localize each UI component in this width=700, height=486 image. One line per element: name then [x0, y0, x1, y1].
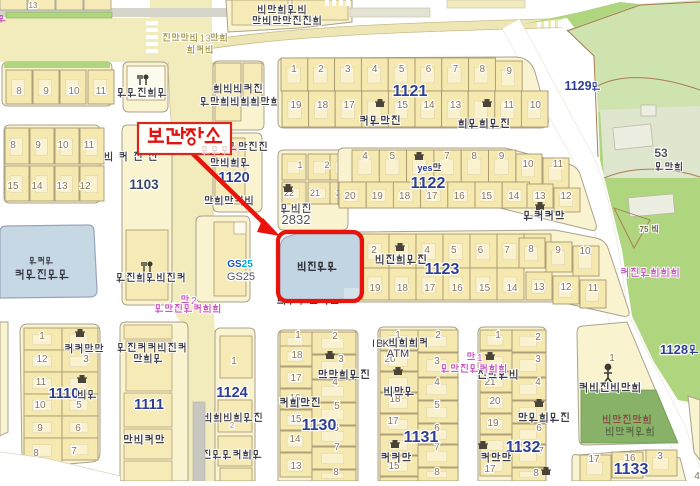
svg-text:15: 15 [481, 191, 493, 202]
svg-text:19: 19 [369, 283, 381, 294]
svg-text:5: 5 [334, 401, 340, 412]
svg-text:17: 17 [484, 464, 496, 475]
svg-text:9: 9 [35, 140, 41, 151]
svg-text:2: 2 [230, 421, 235, 430]
svg-text:15: 15 [479, 283, 491, 294]
svg-text:11: 11 [96, 86, 107, 97]
svg-text:1129: 1129 [564, 79, 591, 93]
svg-text:5: 5 [451, 245, 457, 256]
svg-text:3: 3 [338, 354, 344, 365]
svg-text:2: 2 [535, 332, 541, 343]
svg-text:14: 14 [289, 434, 301, 445]
svg-text:11: 11 [36, 377, 47, 388]
svg-text:10: 10 [34, 400, 46, 411]
svg-text:7: 7 [444, 151, 450, 162]
svg-text:3: 3 [434, 356, 440, 367]
svg-text:1121: 1121 [393, 83, 428, 100]
svg-text:3: 3 [535, 354, 541, 365]
svg-text:6: 6 [478, 245, 484, 256]
svg-text:17: 17 [387, 416, 399, 427]
svg-text:12: 12 [79, 181, 91, 192]
svg-text:1: 1 [495, 330, 501, 341]
svg-text:18: 18 [291, 350, 303, 361]
svg-text:8: 8 [528, 244, 534, 255]
svg-text:8: 8 [434, 467, 440, 478]
svg-text:9: 9 [43, 86, 49, 97]
svg-text:1: 1 [297, 160, 302, 170]
svg-text:9: 9 [506, 66, 512, 77]
svg-text:1123: 1123 [425, 261, 460, 278]
svg-text:17: 17 [344, 100, 356, 111]
svg-text:1: 1 [231, 356, 237, 367]
svg-text:13: 13 [534, 191, 546, 202]
svg-text:12: 12 [560, 191, 572, 202]
svg-text:15: 15 [290, 414, 302, 425]
svg-text:2: 2 [324, 160, 329, 170]
svg-text:7: 7 [453, 64, 459, 75]
svg-text:17: 17 [426, 191, 438, 202]
svg-text:11: 11 [588, 283, 599, 294]
svg-text:19: 19 [372, 191, 384, 202]
svg-text:8: 8 [10, 140, 16, 151]
svg-text:2832: 2832 [282, 212, 311, 227]
svg-text:8: 8 [480, 64, 486, 75]
svg-text:1130: 1130 [302, 417, 337, 434]
svg-text:20: 20 [489, 396, 501, 407]
svg-text:8: 8 [16, 86, 22, 97]
svg-text:19: 19 [290, 100, 302, 111]
svg-text:6: 6 [536, 423, 542, 434]
svg-text:2: 2 [318, 64, 324, 75]
svg-text:17: 17 [424, 283, 436, 294]
svg-text:1110: 1110 [49, 386, 80, 402]
svg-text:10: 10 [579, 246, 591, 257]
svg-text:GS25: GS25 [227, 271, 255, 283]
svg-text:53: 53 [654, 146, 668, 160]
svg-text:4: 4 [362, 151, 368, 162]
svg-text:20: 20 [344, 191, 356, 202]
svg-text:6: 6 [75, 423, 81, 434]
svg-text:14: 14 [31, 181, 43, 192]
svg-text:4: 4 [372, 64, 378, 75]
svg-text:15: 15 [7, 181, 19, 192]
svg-text:3: 3 [83, 354, 89, 365]
svg-text:11: 11 [504, 100, 515, 111]
svg-text:16: 16 [454, 191, 466, 202]
svg-text:7: 7 [71, 446, 77, 457]
svg-text:18: 18 [397, 283, 409, 294]
svg-text:5: 5 [399, 64, 405, 75]
svg-text:7: 7 [504, 245, 510, 256]
svg-text:4: 4 [535, 377, 541, 388]
svg-text:10: 10 [57, 140, 69, 151]
svg-text:I: I [372, 338, 375, 350]
svg-text:9: 9 [37, 423, 43, 434]
svg-text:10: 10 [530, 100, 542, 111]
svg-text:1131: 1131 [404, 429, 439, 446]
svg-text:1: 1 [200, 34, 205, 45]
svg-text:1: 1 [477, 353, 483, 364]
svg-text:19: 19 [487, 418, 499, 429]
svg-text:yes: yes [417, 163, 432, 173]
svg-text:3: 3 [345, 64, 351, 75]
svg-text:13: 13 [533, 282, 545, 293]
svg-text:1: 1 [609, 353, 615, 364]
svg-text:12: 12 [36, 354, 48, 365]
svg-text:7: 7 [334, 442, 340, 453]
svg-text:18: 18 [317, 100, 329, 111]
svg-text:8: 8 [333, 467, 339, 478]
svg-text:15: 15 [397, 100, 409, 111]
svg-text:5: 5 [434, 400, 440, 411]
svg-text:1122: 1122 [411, 175, 446, 192]
svg-text:ATM: ATM [387, 348, 409, 360]
svg-text:4: 4 [434, 377, 440, 388]
svg-text:12: 12 [560, 282, 572, 293]
svg-text:14: 14 [508, 191, 520, 202]
svg-text:14: 14 [423, 100, 435, 111]
svg-text:13: 13 [29, 1, 38, 10]
svg-text:1: 1 [39, 331, 45, 342]
svg-text:13: 13 [290, 461, 302, 472]
svg-text:6: 6 [426, 64, 432, 75]
svg-text:1133: 1133 [614, 461, 649, 478]
svg-text:8: 8 [533, 468, 539, 479]
svg-text:1103: 1103 [129, 177, 159, 192]
svg-text:3: 3 [205, 34, 210, 45]
svg-text:8: 8 [471, 151, 477, 162]
svg-text:75: 75 [640, 225, 649, 234]
svg-text:10: 10 [68, 86, 80, 97]
svg-text:17: 17 [588, 454, 600, 465]
svg-text:13: 13 [56, 181, 68, 192]
svg-text:3: 3 [657, 451, 663, 462]
svg-text:1111: 1111 [134, 397, 164, 413]
svg-text:4: 4 [694, 471, 700, 481]
svg-text:1: 1 [291, 64, 297, 75]
svg-text:1128: 1128 [660, 342, 688, 357]
svg-text:11: 11 [553, 159, 564, 170]
svg-text:18: 18 [399, 191, 411, 202]
svg-text:1: 1 [295, 330, 301, 341]
svg-text:2: 2 [332, 331, 338, 342]
svg-text:1124: 1124 [216, 385, 247, 401]
svg-text:1132: 1132 [506, 439, 541, 456]
svg-text:9: 9 [555, 245, 561, 256]
svg-text:16: 16 [452, 283, 464, 294]
svg-text:2: 2 [435, 330, 441, 341]
svg-text:5: 5 [390, 151, 396, 162]
svg-text:17: 17 [290, 373, 302, 384]
svg-text:21: 21 [310, 188, 320, 198]
svg-text:13: 13 [450, 100, 462, 111]
svg-text:14: 14 [506, 283, 518, 294]
svg-text:9: 9 [499, 151, 505, 162]
svg-text:GS25: GS25 [227, 259, 253, 270]
svg-text:10: 10 [522, 159, 534, 170]
svg-text:11: 11 [84, 140, 95, 151]
